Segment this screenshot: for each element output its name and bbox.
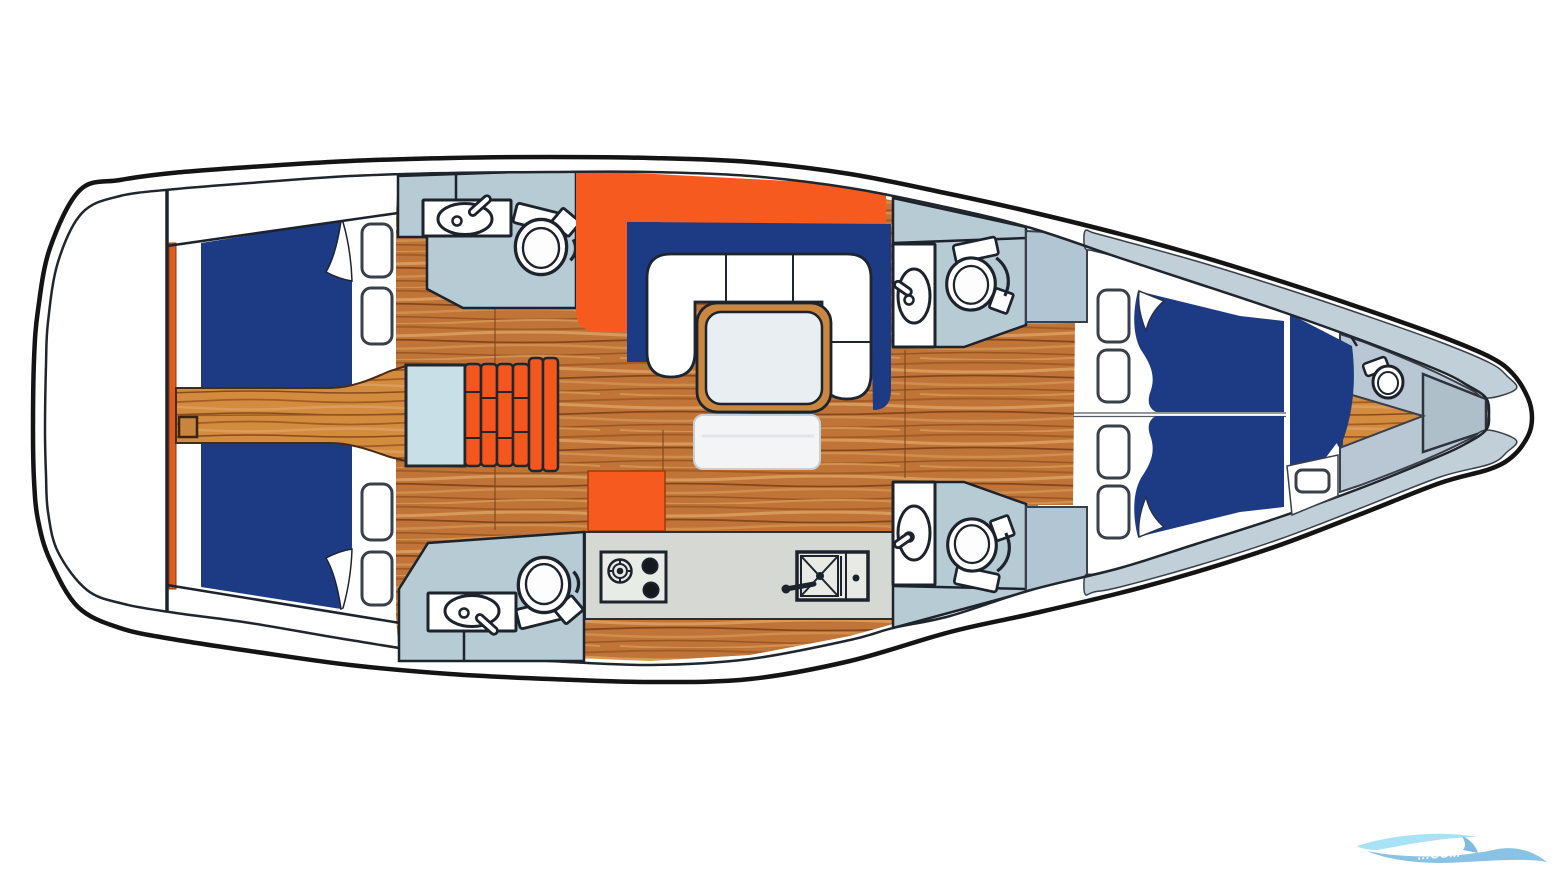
svg-text:…COM: …COM <box>1416 845 1461 863</box>
